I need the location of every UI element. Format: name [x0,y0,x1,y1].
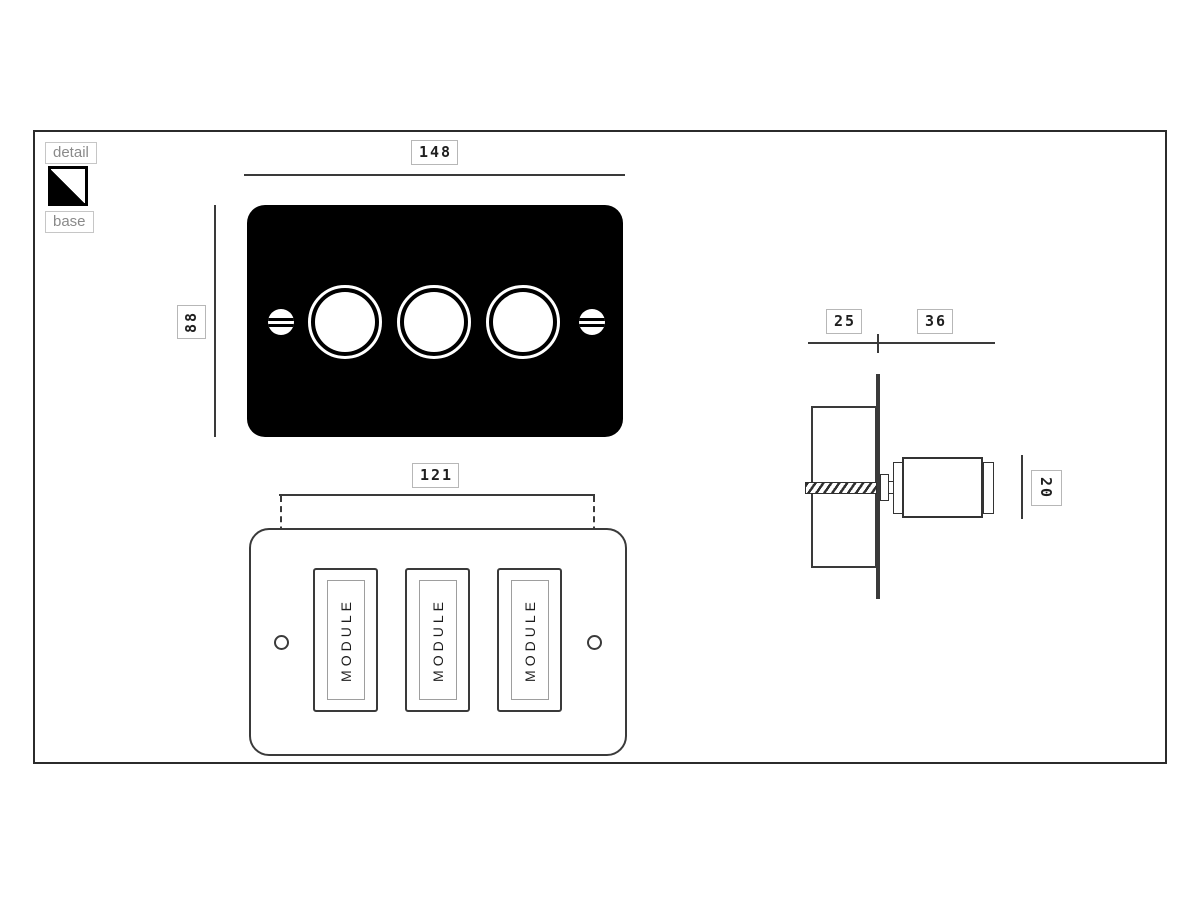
drawing-canvas: detail base 148 88 121 MODULE MODULE MOD… [0,0,1200,900]
module-1-label: MODULE [338,598,354,682]
dim-height-line [214,205,216,437]
finish-swatch-icon [48,166,88,206]
module-3-label: MODULE [522,598,538,682]
dim-knob-line [1021,455,1023,519]
module-1-inner: MODULE [327,580,365,700]
dimmer-knob-1 [308,285,382,359]
dim-width-label: 148 [411,140,458,165]
module-3: MODULE [497,568,562,712]
module-3-inner: MODULE [511,580,549,700]
screw-right-icon [579,309,605,335]
threaded-rod-icon [805,482,877,494]
dim-depth-line [808,342,995,344]
detail-label: detail [45,142,97,164]
dim-centres-label: 121 [412,463,459,488]
knob-side-body [902,457,983,518]
dimmer-knob-2 [397,285,471,359]
dim-height-label: 88 [177,305,206,339]
fixing-hole-left [274,635,289,650]
dim-width-line [244,174,625,176]
base-label: base [45,211,94,233]
dim-knob-text: 20 [1038,477,1056,499]
dim-knob-label: 20 [1031,470,1062,506]
knob-collar-right [983,462,994,514]
dim-height-text: 88 [183,311,201,333]
module-1: MODULE [313,568,378,712]
module-2-inner: MODULE [419,580,457,700]
module-2-label: MODULE [430,598,446,682]
dim-depth-tick [877,334,879,353]
screw-left-icon [268,309,294,335]
module-2: MODULE [405,568,470,712]
fixing-hole-right [587,635,602,650]
dim-projection-label: 36 [917,309,953,334]
dim-depth-behind-label: 25 [826,309,862,334]
dim-centres-line [279,494,595,496]
dimmer-knob-3 [486,285,560,359]
